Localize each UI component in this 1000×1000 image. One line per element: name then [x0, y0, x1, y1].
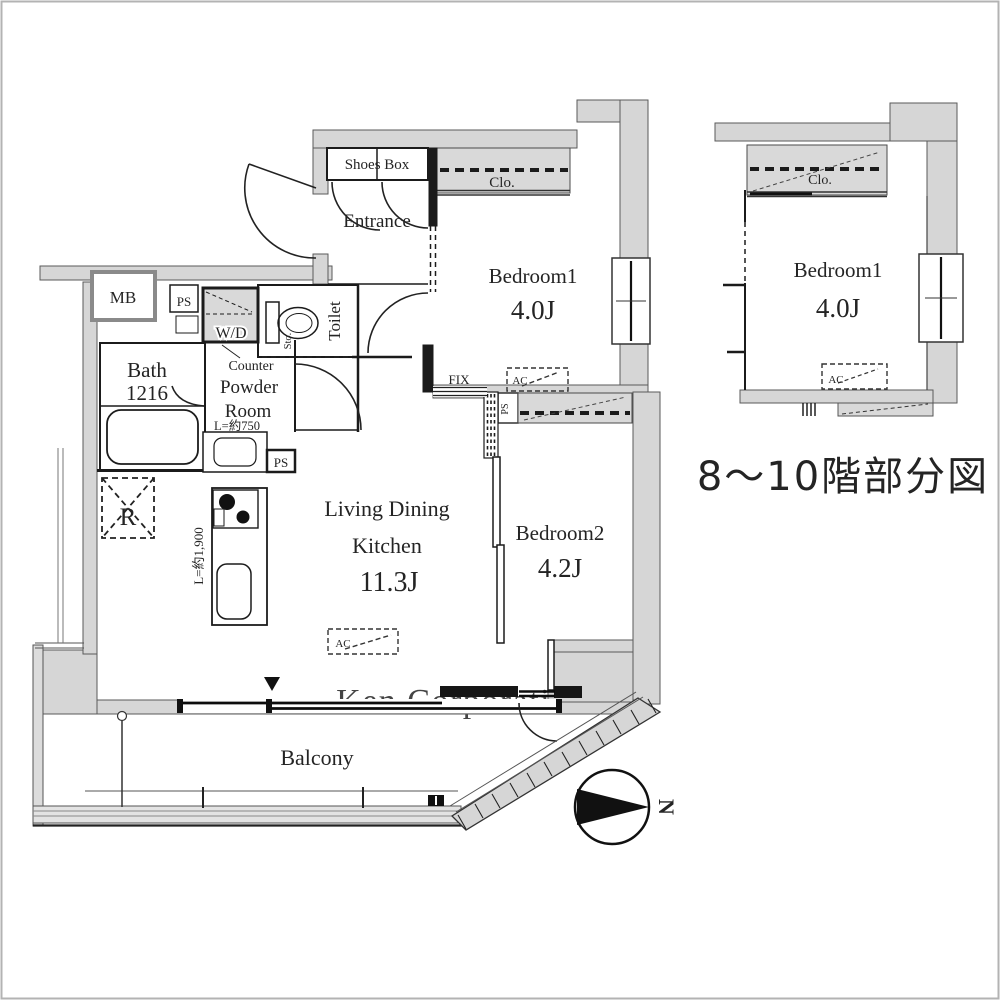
- window-cap-left: [177, 699, 183, 713]
- bedroom1-label: Bedroom1: [489, 264, 578, 288]
- fix-window: [433, 386, 487, 397]
- entrance-label: Entrance: [343, 211, 411, 232]
- bath-size: 1216: [126, 381, 168, 405]
- ps-label-mid: PS: [274, 455, 288, 470]
- ac-label-ldk: AC: [335, 638, 350, 650]
- west-wall: [83, 282, 97, 654]
- balcony-label: Balcony: [280, 745, 353, 770]
- partial-north-wall: [715, 123, 892, 141]
- meter-box-label: MB: [110, 288, 136, 307]
- closet-label: Clo.: [489, 175, 514, 191]
- bedroom2-west-wall-upper: [493, 457, 500, 547]
- hall-corner-wall: [423, 345, 433, 392]
- north-wall: [313, 130, 577, 148]
- fridge-label: R: [120, 504, 137, 531]
- bedroom1-size: 4.0J: [511, 295, 555, 325]
- partial-bedroom1-label: Bedroom1: [794, 258, 883, 282]
- storage-label: Sto.: [283, 333, 294, 350]
- partial-plan-caption: 8〜10階部分図: [697, 454, 989, 500]
- south-wall-segment-left: [440, 686, 518, 697]
- ps-label-top: PS: [177, 294, 191, 309]
- corridor-wall: [40, 266, 332, 280]
- washer-dryer-label: W/D: [215, 325, 246, 342]
- bedroom2-label: Bedroom2: [516, 521, 605, 545]
- partial-ac-label: AC: [828, 374, 843, 386]
- partial-south-wall: [740, 390, 933, 403]
- shoes-box-label: Shoes Box: [345, 157, 410, 173]
- bedroom2-step-wall: [548, 640, 554, 690]
- north-label: N: [654, 799, 679, 815]
- toilet-label: Toilet: [325, 301, 344, 341]
- partial-ne-block: [890, 103, 957, 141]
- ldk-label-2: Kitchen: [352, 533, 422, 558]
- partition-pivot: [118, 712, 127, 721]
- window-cap-mid: [266, 699, 272, 713]
- ldk-size: 11.3J: [360, 567, 419, 598]
- partial-closet-label: Clo.: [808, 173, 832, 188]
- ac-label-bedroom1: AC: [512, 375, 527, 387]
- kitchen-width-label: L=約1,900: [191, 527, 206, 585]
- fix-label: FIX: [449, 372, 471, 387]
- bedroom2-south-wall: [548, 640, 633, 652]
- bedroom1-east-wall: [620, 100, 648, 392]
- balcony-railing-band: [33, 806, 461, 823]
- ps-label-bedroom2: PS: [500, 403, 511, 414]
- floorplan-page: Ken Corporation Ltd.: [0, 0, 1000, 1000]
- bath-label: Bath: [127, 358, 167, 382]
- ldk-balcony-window: [178, 699, 562, 713]
- bedroom2-size: 4.2J: [538, 553, 582, 583]
- window-cap-right: [556, 699, 562, 713]
- counter-label: Counter: [228, 359, 273, 374]
- bedroom2-east-wall: [633, 392, 660, 704]
- bedroom1-west-wall: [429, 148, 437, 226]
- southwest-wall-block: [35, 650, 97, 714]
- stove-burner-2: [237, 511, 250, 524]
- balcony-left-edge: [33, 645, 43, 826]
- powder-label-1: Powder: [220, 377, 279, 398]
- bedroom2-west-wall-lower: [497, 545, 504, 643]
- floorplan-image: Ken Corporation Ltd.: [0, 0, 1000, 1000]
- stove-burner-1: [219, 494, 235, 510]
- powder-width-label: L=約750: [214, 418, 260, 433]
- partial-bedroom1-size: 4.0J: [816, 293, 860, 323]
- south-wall-segment-right: [554, 686, 582, 698]
- ldk-label-1: Living Dining: [324, 496, 449, 521]
